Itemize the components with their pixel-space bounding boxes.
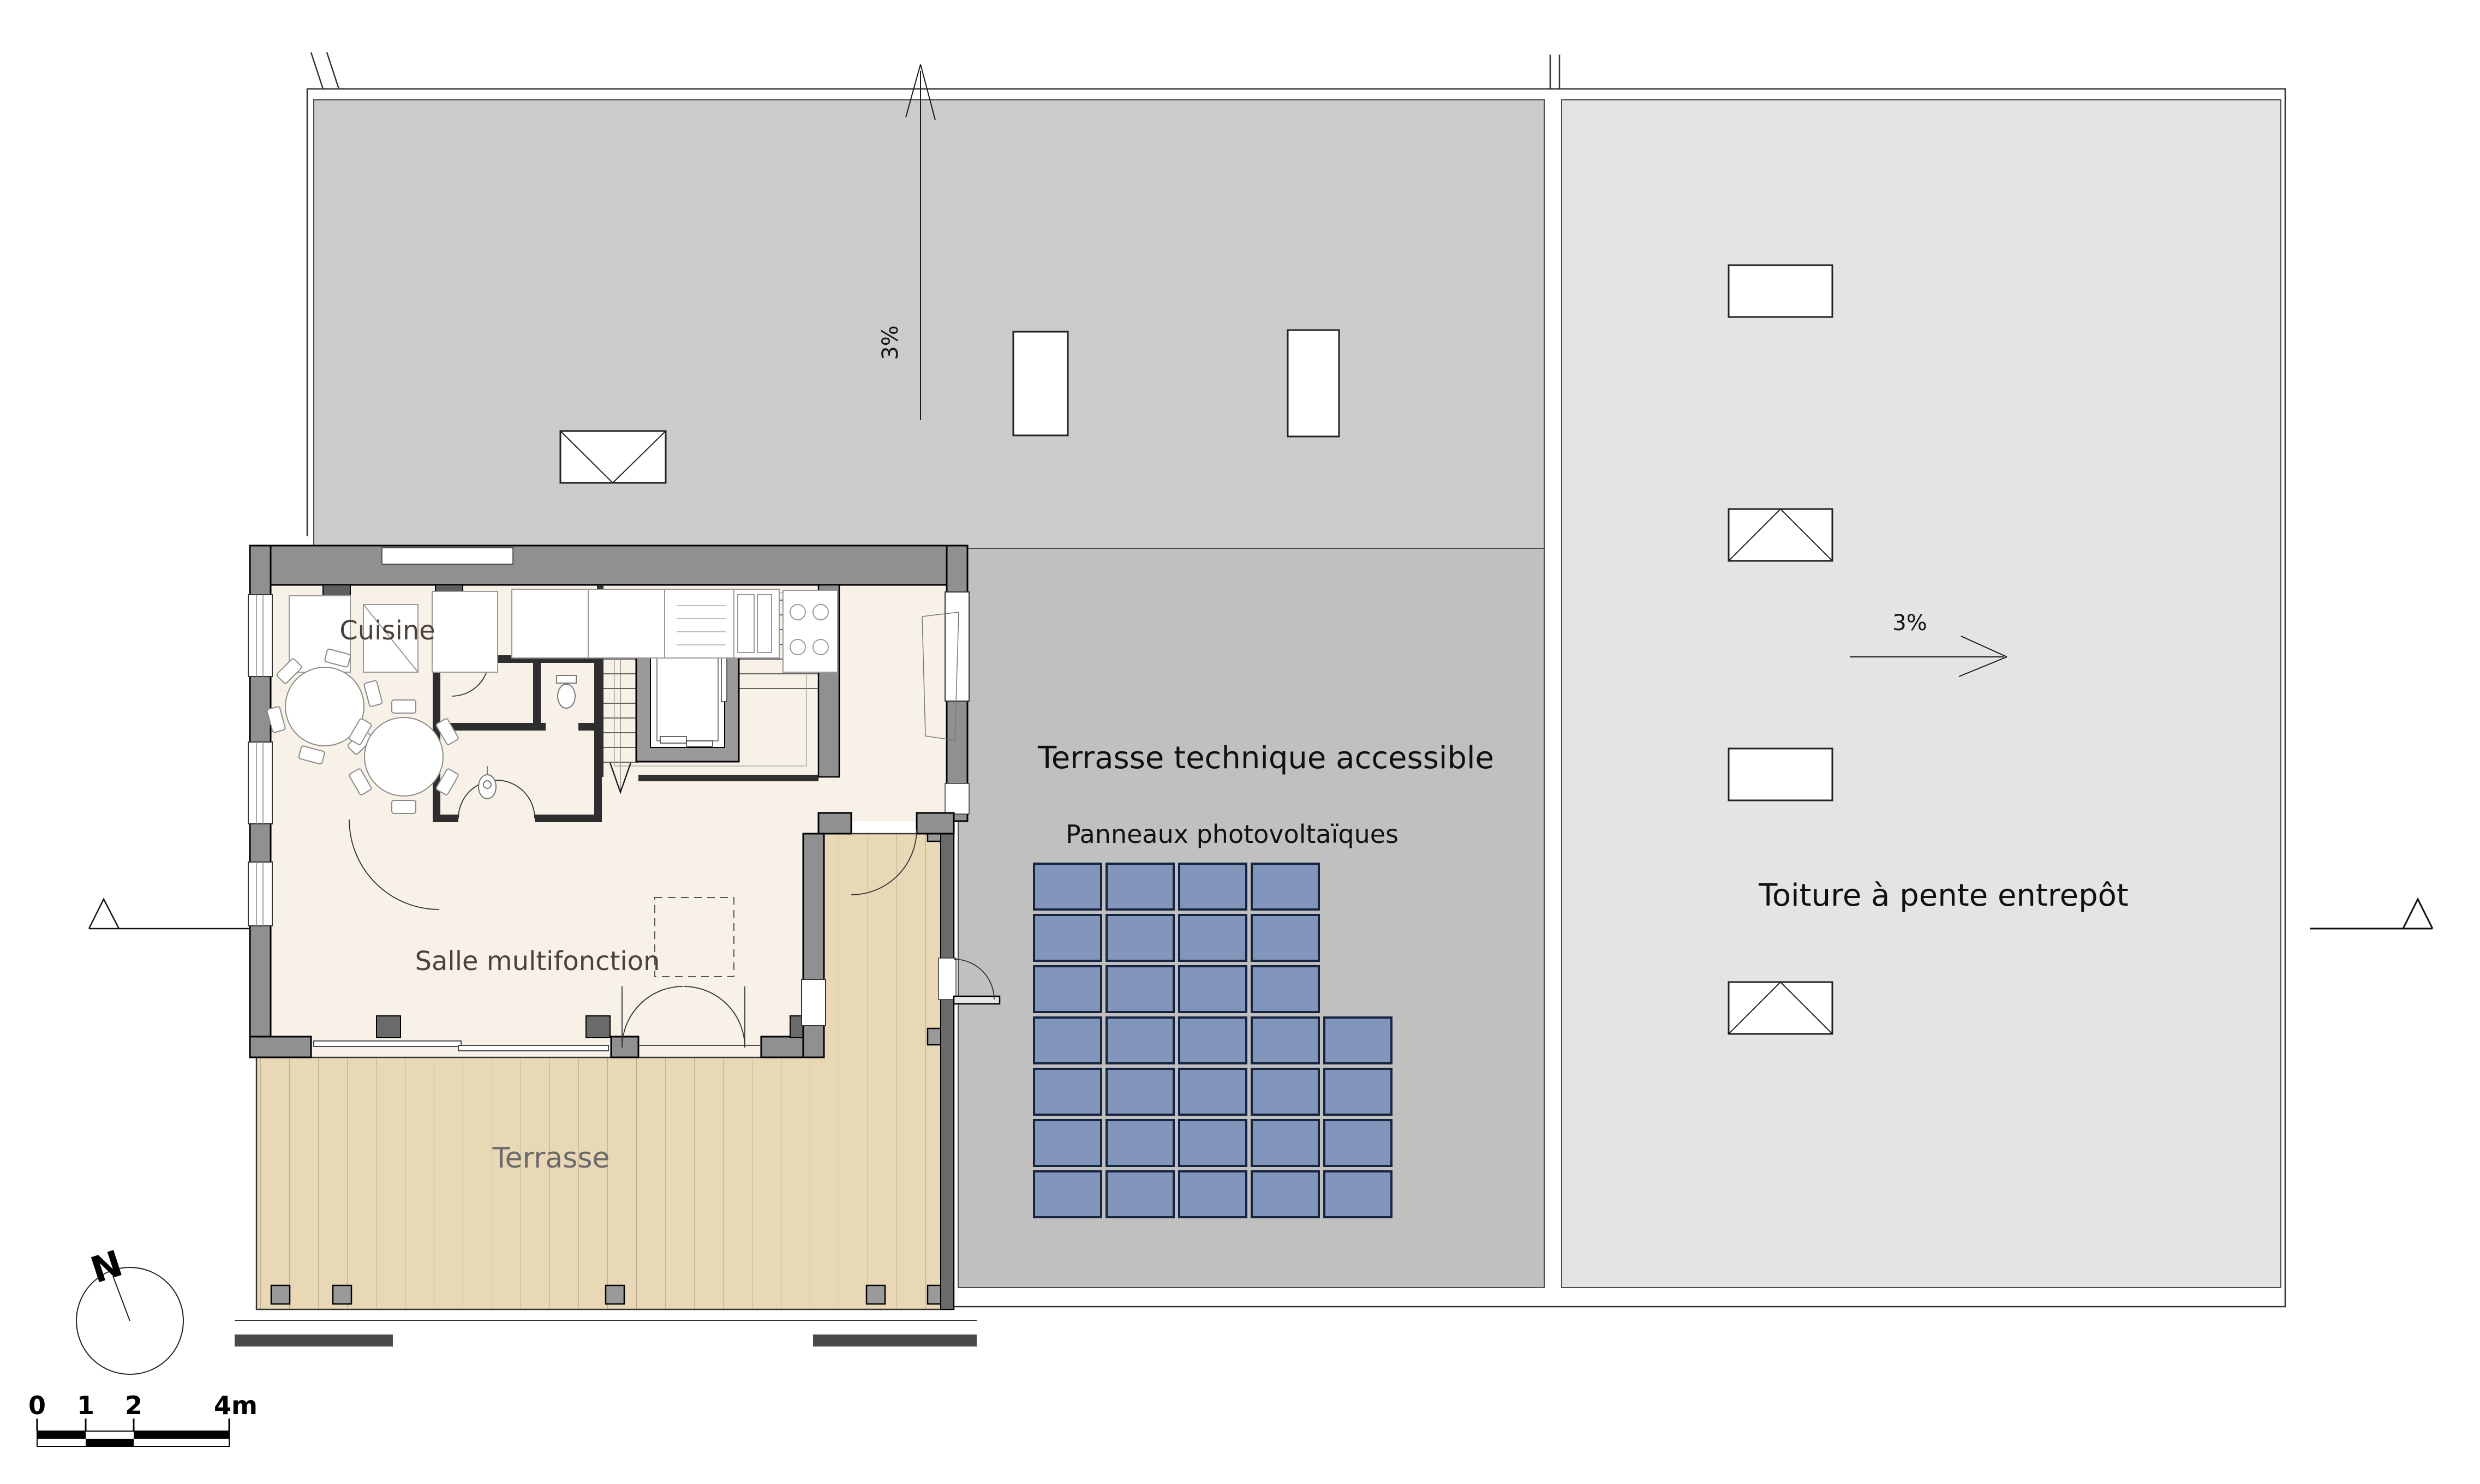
pv-panel [1179, 864, 1246, 909]
roof-junction-jog [1550, 55, 1559, 89]
east-door-gap [945, 783, 969, 814]
pv-panel [1107, 915, 1174, 961]
pv-panel [1179, 1018, 1246, 1063]
pv-panel [1252, 1171, 1319, 1217]
pv-panel [1034, 915, 1101, 961]
pv-panel [1324, 1018, 1391, 1063]
pv-panel [1107, 1171, 1174, 1217]
east-window [945, 592, 969, 701]
pv-panel [1324, 1120, 1391, 1166]
pv-panel [1034, 1171, 1101, 1217]
scale-tick-0: 0 [28, 1391, 46, 1420]
pv-panel [1324, 1069, 1391, 1115]
pv-panel [1179, 966, 1246, 1012]
label-terrasse-technique: Terrasse technique accessible [1037, 740, 1494, 776]
warehouse-hatch-1 [1729, 265, 1832, 317]
pv-panel [1107, 966, 1174, 1012]
west-windows [248, 595, 272, 926]
scale-tick-1: 1 [77, 1391, 94, 1420]
scale-tick-2: 2 [125, 1391, 142, 1420]
toilet-1 [557, 675, 576, 708]
pv-panel [1179, 1120, 1246, 1166]
pv-panel [1107, 1018, 1174, 1063]
pv-panel [1179, 915, 1246, 961]
pv-panel [1324, 1171, 1391, 1217]
pv-panel [1034, 1018, 1101, 1063]
roof-hatch-vertical-2 [1288, 330, 1339, 436]
pv-panel [1034, 1120, 1101, 1166]
sliding-door-panel [458, 1045, 608, 1051]
warehouse-hatch-4 [1729, 982, 1832, 1034]
pv-panel [1252, 864, 1319, 909]
pv-panel [1107, 1069, 1174, 1115]
scale-bar: 0 1 2 4m [28, 1391, 258, 1446]
pv-panel [1252, 1120, 1319, 1166]
pv-panel [1252, 1018, 1319, 1063]
pv-panel [1179, 1069, 1246, 1115]
label-terrasse: Terrasse [492, 1142, 610, 1175]
slope-up-label: 3% [878, 325, 903, 360]
north-label: N [86, 1242, 127, 1291]
pv-panel [1107, 864, 1174, 909]
pv-panel [1034, 1069, 1101, 1115]
pv-panel [1034, 864, 1101, 909]
door-leaf [954, 996, 1000, 1004]
north-ribbon-window [382, 548, 513, 564]
salle-east-window [802, 979, 826, 1026]
pv-panel [1034, 966, 1101, 1012]
pv-panel [1252, 915, 1319, 961]
slope-right-label: 3% [1892, 611, 1927, 636]
pv-panel [1179, 1171, 1246, 1217]
floor-plan-sheet: 3% 3% [0, 0, 2480, 1484]
label-salle-multifonction: Salle multifonction [415, 946, 660, 977]
axis-marker-left [89, 899, 249, 929]
roof-hatch-envelope [560, 431, 666, 483]
label-cuisine: Cuisine [339, 615, 435, 646]
sliding-door-panel [314, 1041, 461, 1046]
roof-warehouse [1562, 100, 2281, 1288]
north-compass-icon [76, 1267, 183, 1374]
scale-tick-4m: 4m [214, 1391, 258, 1420]
warehouse-hatch-2 [1729, 509, 1832, 561]
roof-top-band [314, 100, 1544, 548]
pv-panel [1107, 1120, 1174, 1166]
warehouse-hatch-3 [1729, 749, 1832, 800]
terrace-footing-lines [235, 1320, 977, 1347]
pv-panel [1252, 966, 1319, 1012]
pv-panel [1252, 1069, 1319, 1115]
label-panneaux: Panneaux photovoltaïques [1066, 819, 1399, 849]
label-toiture-entrepot: Toiture à pente entrepôt [1758, 878, 2129, 913]
elevator-counterweight [721, 654, 727, 702]
cooktop [783, 590, 838, 672]
roof-hatch-vertical-1 [1013, 332, 1068, 435]
corner-break-lines [311, 52, 339, 89]
axis-marker-right [2310, 899, 2433, 929]
